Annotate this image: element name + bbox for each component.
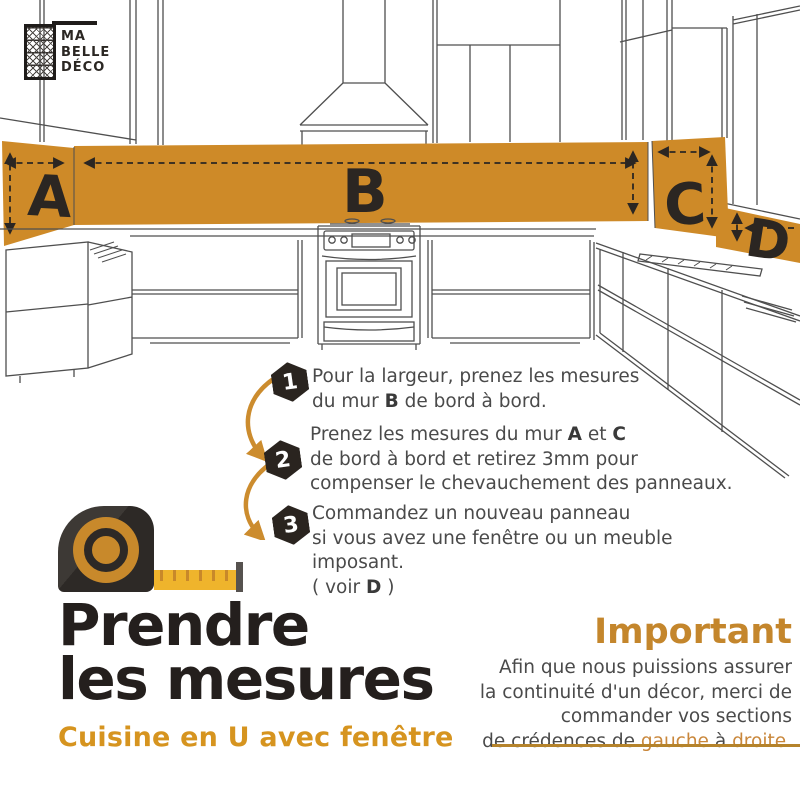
tape-measure-icon xyxy=(58,504,248,596)
logo-line-3: DÉCO xyxy=(61,60,110,76)
range-hood xyxy=(300,0,428,145)
step-1-text: Pour la largeur, prenez les mesures du m… xyxy=(312,365,744,414)
logo-mark xyxy=(24,24,56,80)
tape-tick-marks xyxy=(160,570,234,581)
step-3-text: Commandez un nouveau panneau si vous ave… xyxy=(312,502,744,600)
important-heading: Important xyxy=(432,611,792,653)
right-drawer-run xyxy=(428,240,594,343)
brand-logo: MA BELLE DÉCO xyxy=(0,0,200,90)
panel-label-d: D xyxy=(742,207,795,274)
tape-blade xyxy=(154,570,236,590)
important-block: Important Afin que nous puissions assure… xyxy=(432,611,792,754)
page-subtitle: Cuisine en U avec fenêtre xyxy=(58,722,453,753)
logo-rule xyxy=(52,21,97,25)
logo-line-1: MA xyxy=(61,29,110,45)
step-2-text: Prenez les mesures du mur A et C de bord… xyxy=(310,423,742,497)
page-title-line-1: Prendre xyxy=(58,598,453,652)
infographic-canvas: A B C D xyxy=(0,0,800,800)
tape-end-hook xyxy=(236,562,243,592)
stove xyxy=(318,219,420,350)
tape-reel xyxy=(73,517,139,583)
left-drawer-run xyxy=(132,240,302,343)
arrow-step2-to-step3 xyxy=(246,464,270,536)
panel-label-a: A xyxy=(26,163,74,231)
logo-line-2: BELLE xyxy=(61,45,110,61)
corner-cabinet xyxy=(6,242,132,383)
page-title-line-2: les mesures xyxy=(58,652,453,706)
panel-label-b: B xyxy=(342,157,388,227)
title-block: Prendre les mesures Cuisine en U avec fe… xyxy=(58,598,453,753)
countertop-edge xyxy=(0,229,596,236)
important-text: Afin que nous puissions assurer la conti… xyxy=(432,656,792,754)
panel-label-c: C xyxy=(663,171,708,239)
logo-text: MA BELLE DÉCO xyxy=(61,29,110,76)
arrow-step1-to-step2 xyxy=(248,380,272,456)
bottom-gold-rule xyxy=(492,744,800,747)
